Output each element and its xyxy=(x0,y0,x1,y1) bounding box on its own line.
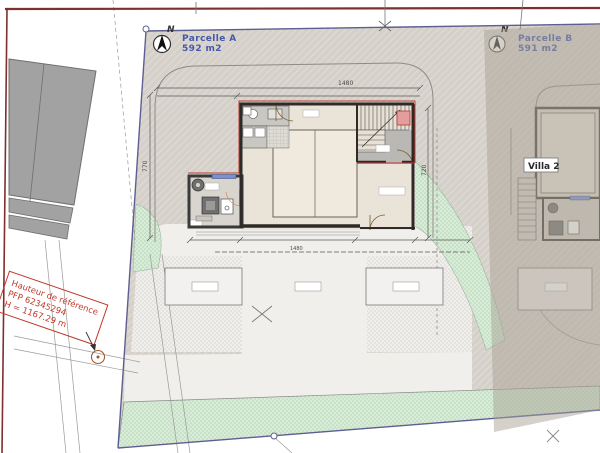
dim-top: 1480 xyxy=(338,80,353,87)
north-label-a: N xyxy=(167,25,175,35)
boundary-node xyxy=(271,433,277,439)
villa2-label: Villa 2 xyxy=(528,162,560,172)
shaft-duct xyxy=(397,111,410,125)
north-arrow-icon-a xyxy=(154,35,171,53)
parcelle-a-area: 592 m2 xyxy=(182,44,222,54)
dim-right: 720 xyxy=(421,164,428,176)
site-plan-canvas: 1480 770 720 1480 N Parcelle B 591 xyxy=(0,0,600,453)
boundary-node xyxy=(143,26,149,32)
parcelle-b-fade-overlay xyxy=(484,24,600,432)
villa2-label-box: Villa 2 xyxy=(524,158,560,172)
parcelle-a-name: Parcelle A xyxy=(182,34,237,44)
site-plan-drawing: 1480 770 720 1480 N Parcelle B 591 xyxy=(0,0,600,453)
dim-left: 770 xyxy=(142,160,149,172)
window-strip xyxy=(212,175,236,179)
dim-bottom: 1480 xyxy=(290,246,303,252)
kitchen-fixtures xyxy=(241,106,289,148)
